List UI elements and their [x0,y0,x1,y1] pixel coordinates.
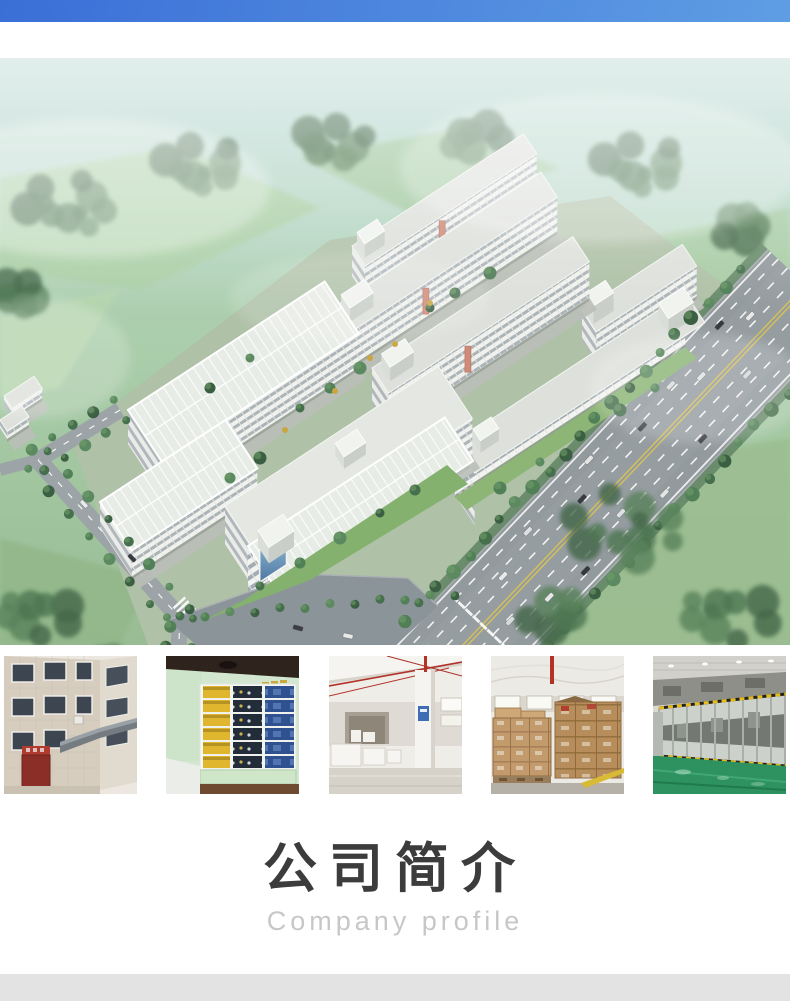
thumbnail-office-building-exterior [4,656,137,794]
section-subtitle: Company profile [0,908,790,935]
factory-aerial-image [0,58,790,645]
section-title: 公司简介 [0,842,790,896]
company-profile-header: 公司简介 Company profile [0,794,790,974]
bottom-gray-band [0,974,790,1001]
thumbnail-product-showroom [166,656,299,794]
top-blue-band [0,0,790,22]
thumbnail-production-line [653,656,786,794]
hero-image-wrap [0,58,790,645]
mist-overlay [0,58,790,645]
thumbnail-warehouse-interior [329,656,462,794]
thumbnail-row [0,656,790,794]
thumbnail-carton-warehouse [491,656,624,794]
